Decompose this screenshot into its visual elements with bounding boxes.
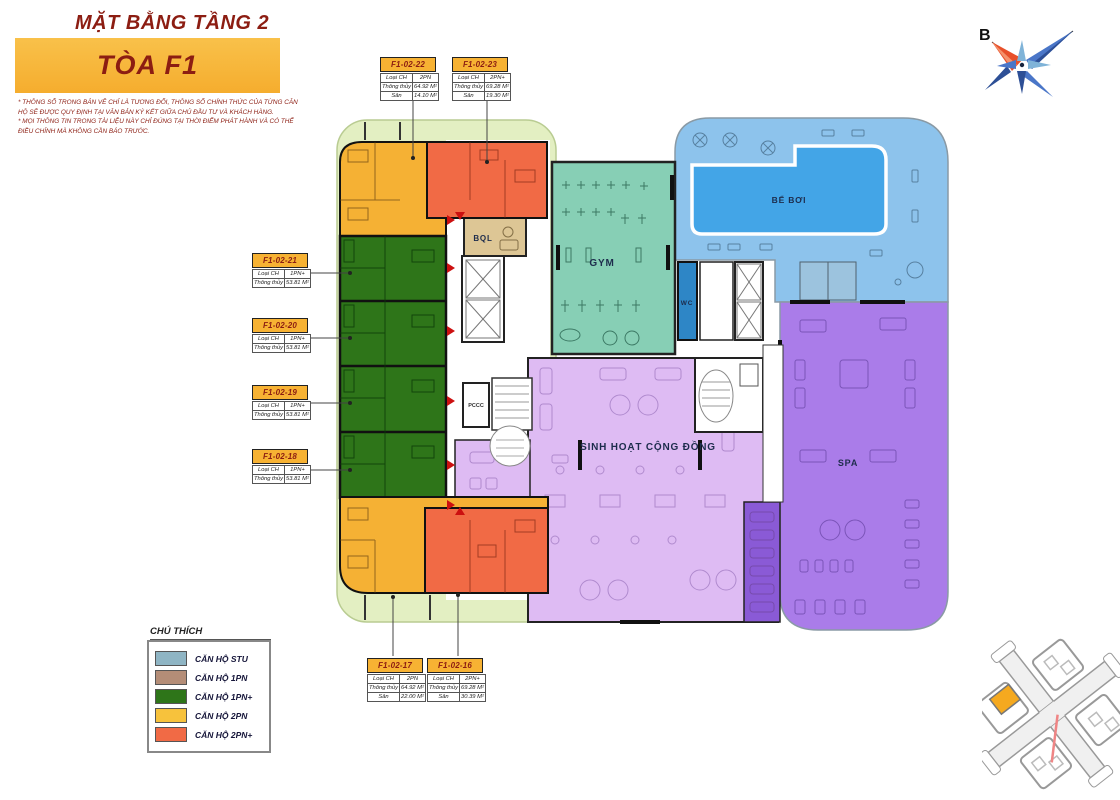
unit-callout-F1-02-20[interactable]: F1-02-20Loại CH1PN+Thông thủy53.81 M² bbox=[252, 318, 308, 353]
unit-info-table: Loại CH2PN+Thông thủy69.28 M²Sân30.39 M² bbox=[427, 674, 486, 702]
disclaimer-line-1: * THÔNG SỐ TRONG BẢN VẼ CHỈ LÀ TƯƠNG ĐỐI… bbox=[18, 98, 305, 117]
wc-label: WC bbox=[681, 300, 693, 307]
legend-swatch-1pn bbox=[155, 670, 187, 685]
gym-label: GYM bbox=[589, 258, 614, 269]
unit-id-label: F1-02-21 bbox=[252, 253, 308, 268]
disclaimer-text: * THÔNG SỐ TRONG BẢN VẼ CHỈ LÀ TƯƠNG ĐỐI… bbox=[18, 98, 305, 136]
unit-id-label: F1-02-22 bbox=[380, 57, 436, 72]
tower-name: TÒA F1 bbox=[97, 50, 198, 81]
page-title: MẶT BẰNG TẦNG 2 bbox=[75, 12, 269, 35]
unit-callout-F1-02-18[interactable]: F1-02-18Loại CH1PN+Thông thủy53.81 M² bbox=[252, 449, 308, 484]
compass-north-label: B bbox=[979, 27, 991, 44]
legend-title: CHÚ THÍCH bbox=[150, 626, 271, 640]
unit-callout-F1-02-21[interactable]: F1-02-21Loại CH1PN+Thông thủy53.81 M² bbox=[252, 253, 308, 288]
unit-info-table: Loại CH2PNThông thủy64.92 M²Sân22.00 M² bbox=[367, 674, 426, 702]
unit-info-table: Loại CH2PN+Thông thủy69.28 M²Sân19.30 M² bbox=[452, 73, 511, 101]
spa-area bbox=[780, 302, 948, 630]
legend-swatch-stu bbox=[155, 651, 187, 666]
tower-name-box: TÒA F1 bbox=[15, 38, 280, 93]
unit-id-label: F1-02-20 bbox=[252, 318, 308, 333]
unit-callout-F1-02-19[interactable]: F1-02-19Loại CH1PN+Thông thủy53.81 M² bbox=[252, 385, 308, 420]
compass-rose: B bbox=[965, 14, 1080, 109]
legend-swatch-2pn-plus bbox=[155, 727, 187, 742]
floorplan-page: { "header": { "title": "MẶT BẰNG TẦNG 2"… bbox=[0, 0, 1120, 800]
legend-item-2pn-plus: CĂN HỘ 2PN+ bbox=[155, 727, 263, 742]
pool-label: BỂ BƠI bbox=[772, 194, 807, 205]
unit-callout-F1-02-23[interactable]: F1-02-23Loại CH2PN+Thông thủy69.28 M²Sân… bbox=[452, 57, 508, 101]
legend-item-stu: CĂN HỘ STU bbox=[155, 651, 263, 666]
legend-item-1pn: CĂN HỘ 1PN bbox=[155, 670, 263, 685]
legend-item-2pn: CĂN HỘ 2PN bbox=[155, 708, 263, 723]
unit-info-table: Loại CH1PN+Thông thủy53.81 M² bbox=[252, 334, 311, 353]
apartment-F1-02-16[interactable] bbox=[425, 508, 548, 593]
pccc-label: PCCC bbox=[468, 403, 484, 409]
massage-lounge-strip bbox=[744, 502, 780, 622]
unit-info-table: Loại CH1PN+Thông thủy53.81 M² bbox=[252, 465, 311, 484]
unit-callout-F1-02-22[interactable]: F1-02-22Loại CH2PNThông thủy64.92 M²Sân1… bbox=[380, 57, 436, 101]
unit-id-label: F1-02-17 bbox=[367, 658, 423, 673]
unit-id-label: F1-02-18 bbox=[252, 449, 308, 464]
unit-id-label: F1-02-16 bbox=[427, 658, 483, 673]
bql-label: BQL bbox=[473, 234, 492, 243]
disclaimer-line-2: * MỌI THÔNG TIN TRONG TÀI LIỆU NÀY CHỈ Đ… bbox=[18, 117, 305, 136]
apartment-F1-02-23[interactable] bbox=[427, 142, 547, 218]
community-label: SINH HOẠT CỘNG ĐỒNG bbox=[580, 440, 716, 453]
unit-callout-F1-02-16[interactable]: F1-02-16Loại CH2PN+Thông thủy69.28 M²Sân… bbox=[427, 658, 483, 702]
unit-id-label: F1-02-23 bbox=[452, 57, 508, 72]
unit-info-table: Loại CH1PN+Thông thủy53.81 M² bbox=[252, 401, 311, 420]
site-minimap[interactable] bbox=[982, 632, 1120, 797]
floor-plan: BỂ BƠI SPA bbox=[330, 105, 960, 640]
legend-swatch-1pn-plus bbox=[155, 689, 187, 704]
legend-swatch-2pn bbox=[155, 708, 187, 723]
spa-label: SPA bbox=[838, 458, 858, 468]
legend-item-1pn-plus: CĂN HỘ 1PN+ bbox=[155, 689, 263, 704]
unit-info-table: Loại CH1PN+Thông thủy53.81 M² bbox=[252, 269, 311, 288]
unit-info-table: Loại CH2PNThông thủy64.92 M²Sân14.10 M² bbox=[380, 73, 439, 101]
unit-id-label: F1-02-19 bbox=[252, 385, 308, 400]
unit-callout-F1-02-17[interactable]: F1-02-17Loại CH2PNThông thủy64.92 M²Sân2… bbox=[367, 658, 423, 702]
legend: CHÚ THÍCH CĂN HỘ STU CĂN HỘ 1PN CĂN HỘ 1… bbox=[147, 626, 271, 753]
